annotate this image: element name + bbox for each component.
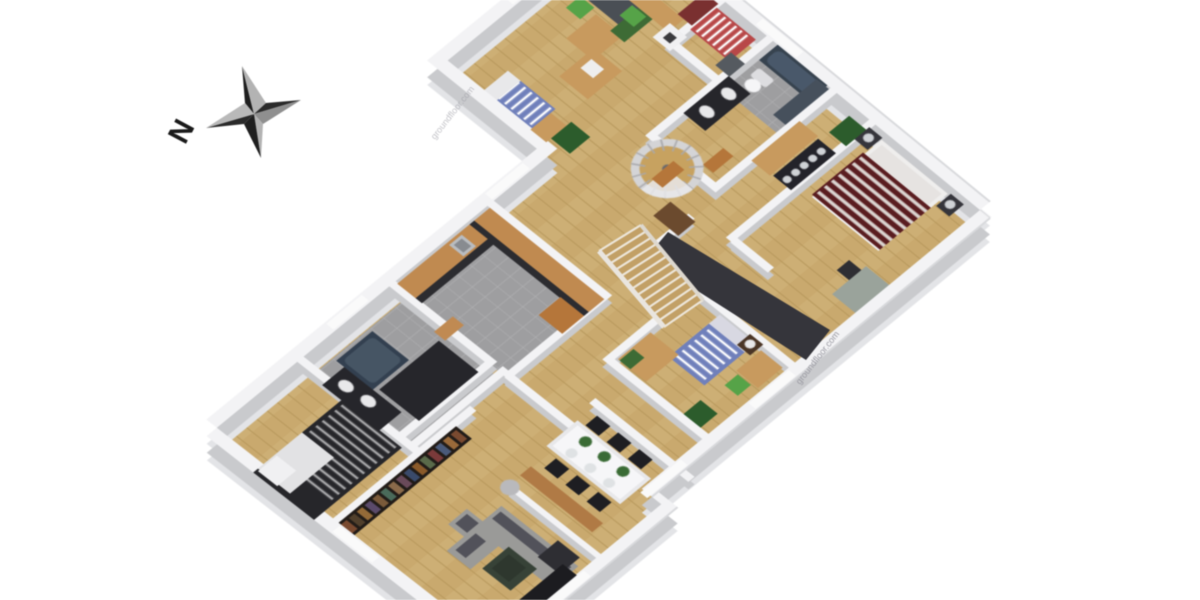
svg-text:N: N <box>161 113 200 148</box>
svg-text:groundfloor.com: groundfloor.com <box>429 84 477 141</box>
